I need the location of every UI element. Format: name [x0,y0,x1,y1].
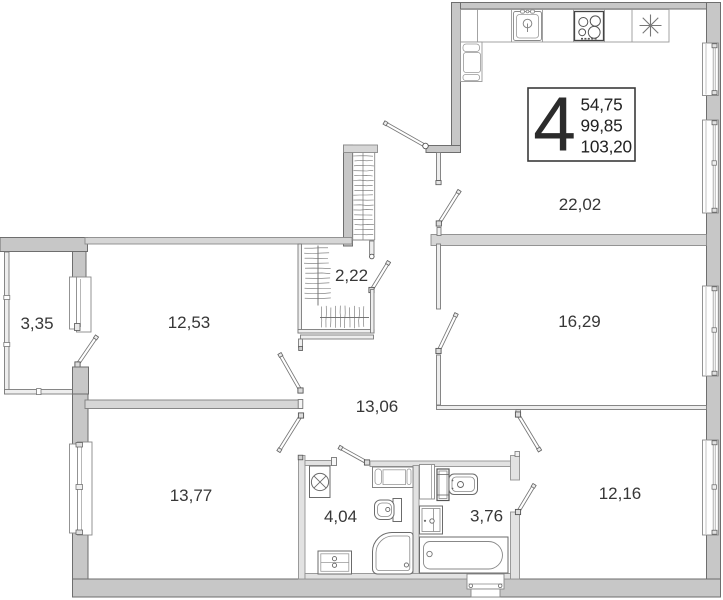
svg-text:103,20: 103,20 [581,137,632,157]
svg-text:12,53: 12,53 [168,313,211,332]
svg-text:54,75: 54,75 [581,95,623,115]
svg-text:3,76: 3,76 [470,507,503,526]
svg-text:4,04: 4,04 [324,507,357,526]
svg-text:3,35: 3,35 [20,314,53,333]
svg-text:4: 4 [533,82,576,168]
svg-text:13,77: 13,77 [170,486,213,505]
svg-text:12,16: 12,16 [599,484,642,503]
svg-text:16,29: 16,29 [558,312,601,331]
svg-text:13,06: 13,06 [356,397,399,416]
svg-text:2,22: 2,22 [335,266,368,285]
svg-text:99,85: 99,85 [581,116,623,136]
svg-text:22,02: 22,02 [559,195,602,214]
